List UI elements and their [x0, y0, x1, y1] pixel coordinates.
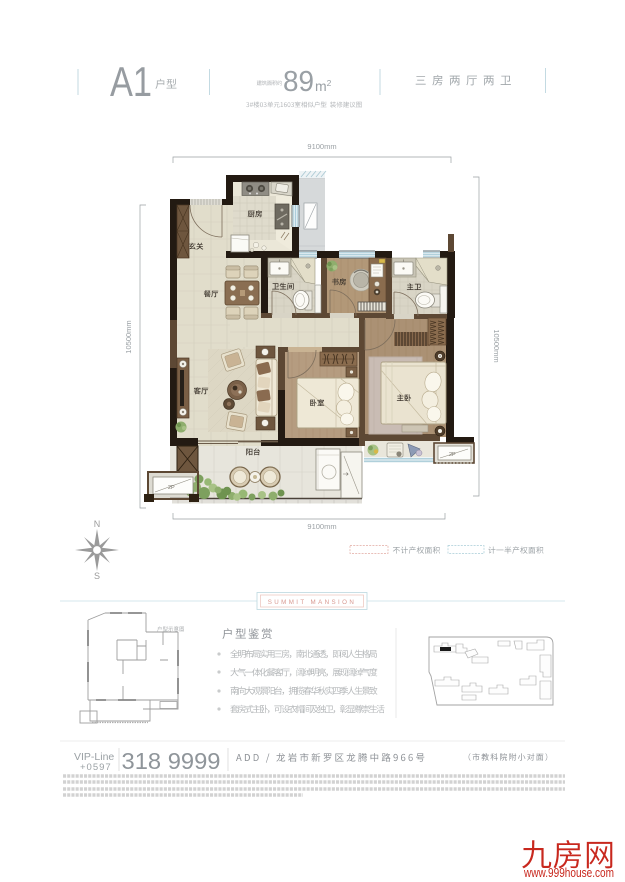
svg-text:+0597: +0597 [80, 762, 112, 773]
svg-text:N: N [94, 519, 101, 529]
svg-text:10500mm: 10500mm [124, 320, 133, 353]
svg-text:9100mm: 9100mm [307, 142, 336, 151]
svg-text:www.999house.com: www.999house.com [523, 866, 614, 880]
svg-text:S: S [94, 571, 100, 581]
svg-text:9100mm: 9100mm [307, 522, 336, 531]
svg-text:318 9999: 318 9999 [122, 748, 221, 774]
svg-text:A1: A1 [110, 58, 152, 105]
svg-text:10500mm: 10500mm [492, 329, 501, 362]
svg-text:89: 89 [283, 66, 314, 98]
svg-text:SUMMIT MANSION: SUMMIT MANSION [268, 599, 357, 606]
svg-text:2P: 2P [168, 485, 175, 491]
svg-text:2P: 2P [449, 452, 456, 458]
svg-text:m2: m2 [315, 78, 332, 94]
